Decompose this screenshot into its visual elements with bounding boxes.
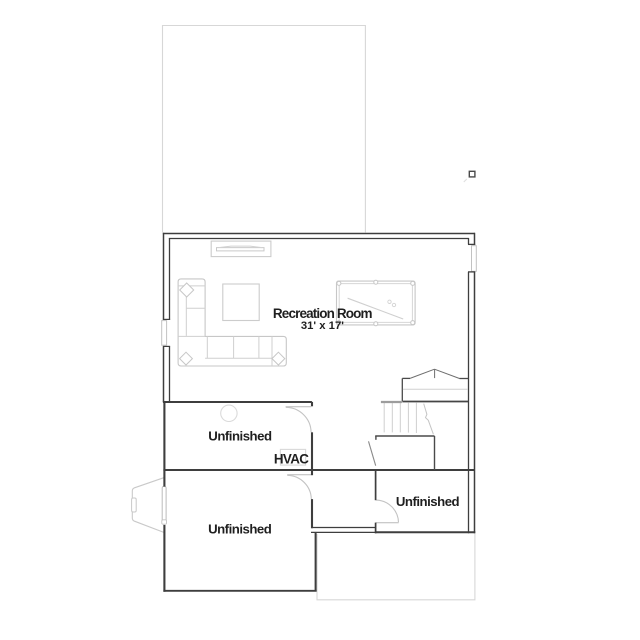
svg-text:HVAC: HVAC [274, 451, 309, 466]
svg-text:Unfinished: Unfinished [208, 522, 272, 537]
svg-text:Unfinished: Unfinished [208, 428, 272, 443]
svg-text:Unfinished: Unfinished [396, 494, 460, 509]
svg-text:31' x 17': 31' x 17' [301, 320, 344, 332]
svg-text:Recreation Room: Recreation Room [273, 306, 373, 321]
